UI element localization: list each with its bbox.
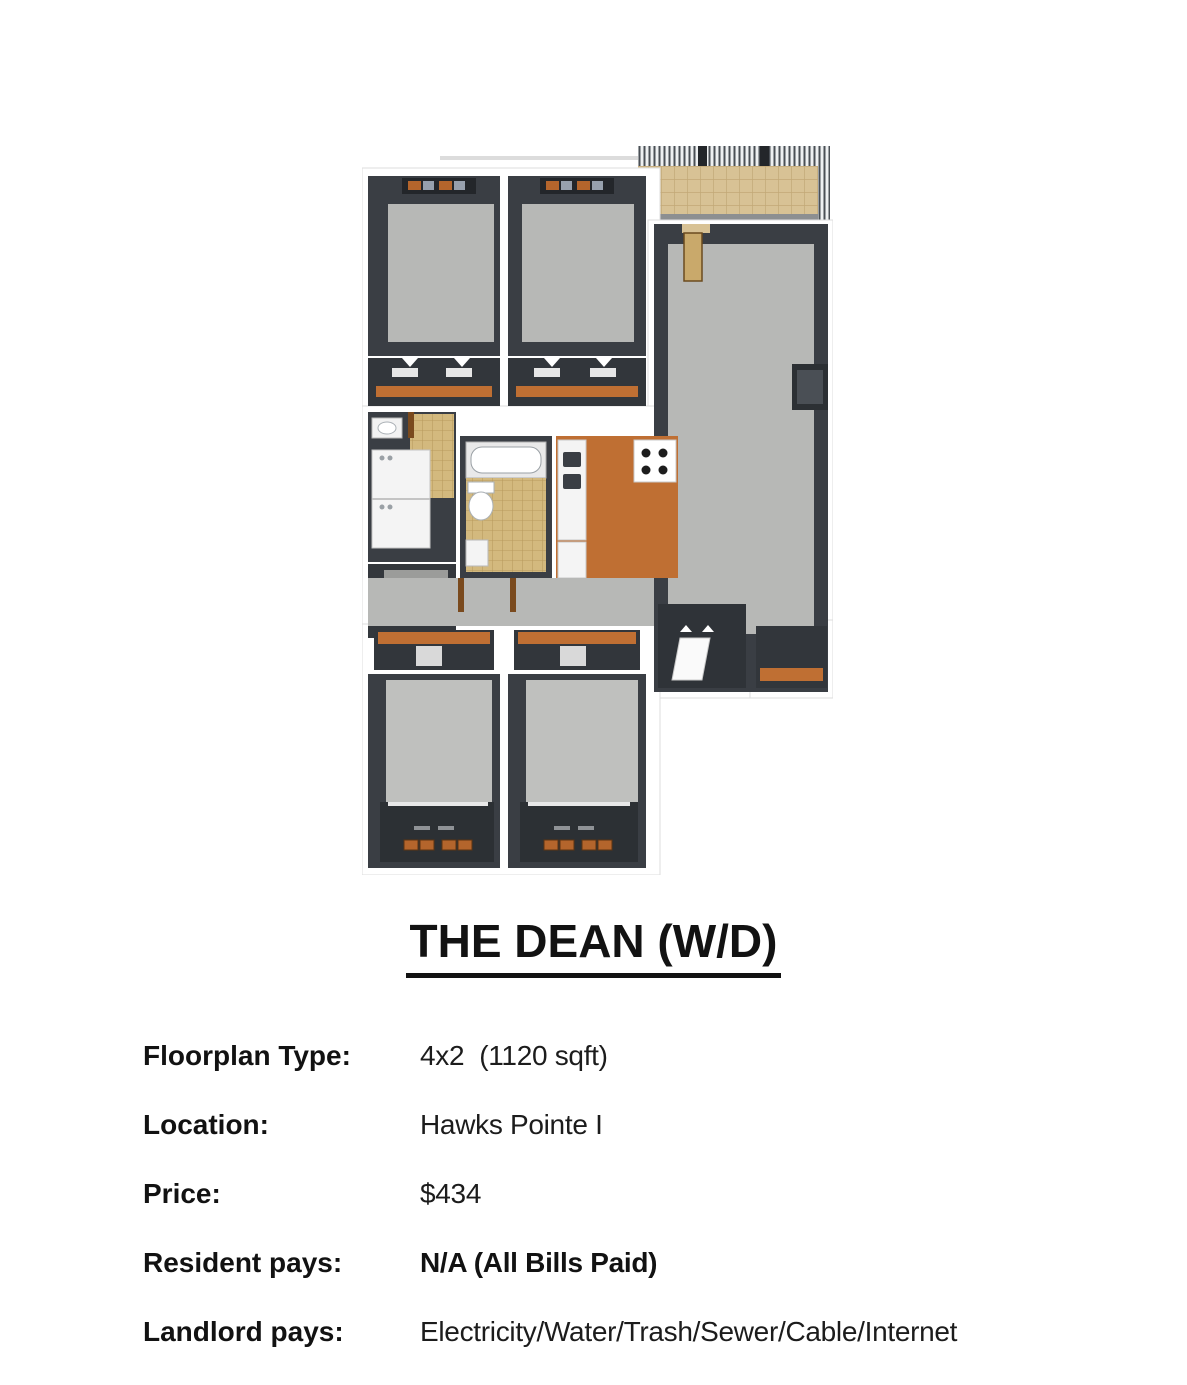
spec-value: Hawks Pointe I <box>420 1109 603 1141</box>
spec-label: Price: <box>143 1178 420 1210</box>
spec-value: N/A (All Bills Paid) <box>420 1247 657 1279</box>
spec-row-resident-pays: Resident pays: N/A (All Bills Paid) <box>143 1247 1123 1281</box>
bathroom <box>460 436 552 578</box>
specs-table: Floorplan Type: 4x2 (1120 sqft) Location… <box>143 1040 1123 1385</box>
bedroom-bottom-middle <box>508 674 646 868</box>
balcony <box>638 146 830 224</box>
spec-label: Landlord pays: <box>143 1316 420 1348</box>
spec-label: Resident pays: <box>143 1247 420 1279</box>
spec-row-price: Price: $434 <box>143 1178 1123 1212</box>
floorplan-image <box>362 140 833 875</box>
spec-value: Electricity/Water/Trash/Sewer/Cable/Inte… <box>420 1316 957 1348</box>
page-title: THE DEAN (W/D) <box>0 914 1187 978</box>
spec-row-landlord-pays: Landlord pays: Electricity/Water/Trash/S… <box>143 1316 1123 1350</box>
spec-value: $434 <box>420 1178 481 1210</box>
spec-row-floorplan-type: Floorplan Type: 4x2 (1120 sqft) <box>143 1040 1123 1074</box>
bedroom-top-left <box>368 176 500 406</box>
bedroom-bottom-left <box>368 674 500 868</box>
spec-row-location: Location: Hawks Pointe I <box>143 1109 1123 1143</box>
kitchen <box>556 436 678 578</box>
spec-label: Floorplan Type: <box>143 1040 420 1072</box>
living-room <box>654 224 828 692</box>
bedroom-top-middle <box>508 176 646 406</box>
floorplan-svg <box>362 140 833 875</box>
spec-value: 4x2 (1120 sqft) <box>420 1040 608 1072</box>
exterior-line <box>440 156 666 160</box>
spec-label: Location: <box>143 1109 420 1141</box>
page-title-text: THE DEAN (W/D) <box>406 914 782 978</box>
entry-closet <box>756 626 827 688</box>
